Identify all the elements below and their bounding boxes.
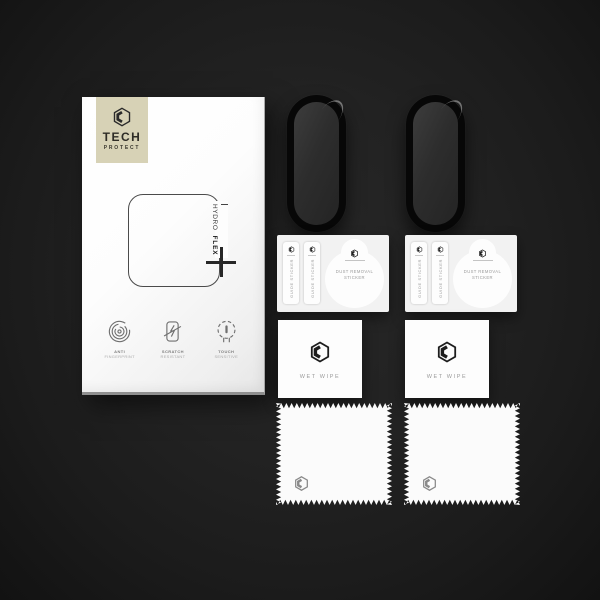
screen-protector [287, 95, 346, 232]
model-name-thin: HYDRO [211, 204, 218, 230]
feature-sublabel: FINGERPRINT [104, 354, 134, 359]
divider [436, 255, 444, 256]
guide-sticker-strip: GUIDE STICKER [411, 242, 427, 304]
sticker-card: GUIDE STICKER GUIDE STICKER DUST REMOVAL… [405, 235, 517, 312]
feature-row: ANTI FINGERPRINT SCRATCH RESISTANT TOU [93, 318, 253, 359]
hexagon-logo-icon [309, 246, 316, 253]
feature-scratch-resistant: SCRATCH RESISTANT [146, 318, 199, 359]
divider [308, 255, 316, 256]
hexagon-logo-icon [308, 340, 332, 364]
hexagon-logo-icon [288, 246, 295, 253]
screen-protector [406, 95, 465, 232]
wet-wipe-label: WET WIPE [427, 374, 468, 380]
touch-sensitive-icon [213, 318, 240, 345]
dust-removal-sublabel: STICKER [344, 275, 365, 281]
feature-sublabel: RESISTANT [161, 354, 186, 359]
scratch-resistant-icon [159, 318, 186, 345]
hexagon-logo-icon [293, 475, 310, 492]
hexagon-logo-icon [111, 106, 133, 128]
divider [345, 260, 365, 261]
wet-wipe-sachet: WET WIPE [405, 320, 489, 398]
guide-sticker-label: GUIDE STICKER [438, 259, 443, 298]
feature-anti-fingerprint: ANTI FINGERPRINT [93, 318, 146, 359]
product-box: TECH PROTECT HYDRO FLEX ANTI FINGERPRINT [82, 97, 265, 395]
hexagon-logo-icon [416, 246, 423, 253]
guide-sticker-label: GUIDE STICKER [310, 259, 315, 298]
guide-sticker-strip: GUIDE STICKER [283, 242, 299, 304]
divider [415, 255, 423, 256]
hexagon-logo-icon [421, 475, 438, 492]
brand-name: TECH [103, 130, 142, 144]
divider [287, 255, 295, 256]
guide-sticker-label: GUIDE STICKER [417, 259, 422, 298]
cleaning-cloth [404, 403, 520, 505]
hexagon-logo-icon [437, 246, 444, 253]
guide-sticker-strip: GUIDE STICKER [304, 242, 320, 304]
hexagon-logo-icon [478, 249, 487, 258]
sticker-card: GUIDE STICKER GUIDE STICKER DUST REMOVAL… [277, 235, 389, 312]
guide-sticker-strip: GUIDE STICKER [432, 242, 448, 304]
divider [473, 260, 493, 261]
dust-removal-sublabel: STICKER [472, 275, 493, 281]
cleaning-cloth [276, 403, 392, 505]
brand-badge: TECH PROTECT [96, 97, 148, 163]
wet-wipe-label: WET WIPE [300, 374, 341, 380]
plus-icon [206, 247, 236, 277]
feature-touch-sensitive: TOUCH SENSITIVE [200, 318, 253, 359]
feature-sublabel: SENSITIVE [214, 354, 238, 359]
hexagon-logo-icon [350, 249, 359, 258]
brand-subname: PROTECT [104, 145, 141, 151]
dust-removal-sticker: DUST REMOVAL STICKER [324, 239, 385, 309]
wet-wipe-sachet: WET WIPE [278, 320, 362, 398]
guide-sticker-label: GUIDE STICKER [289, 259, 294, 298]
dust-removal-sticker: DUST REMOVAL STICKER [452, 239, 513, 309]
product-photo-stage: TECH PROTECT HYDRO FLEX ANTI FINGERPRINT [0, 0, 600, 600]
hexagon-logo-icon [435, 340, 459, 364]
fingerprint-icon [106, 318, 133, 345]
